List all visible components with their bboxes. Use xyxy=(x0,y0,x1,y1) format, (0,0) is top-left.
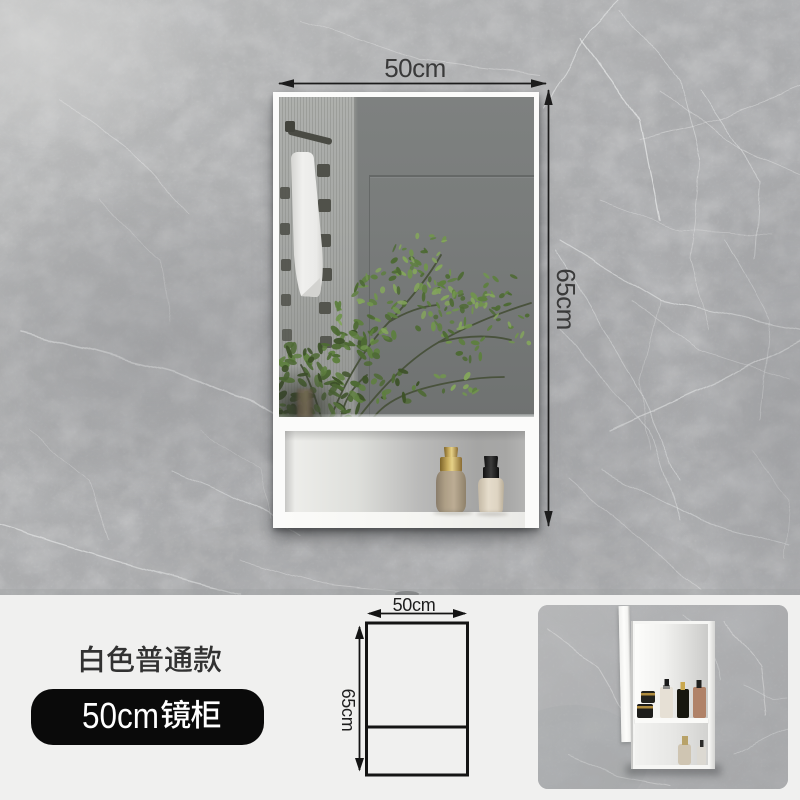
svg-text:50cm: 50cm xyxy=(82,695,159,736)
